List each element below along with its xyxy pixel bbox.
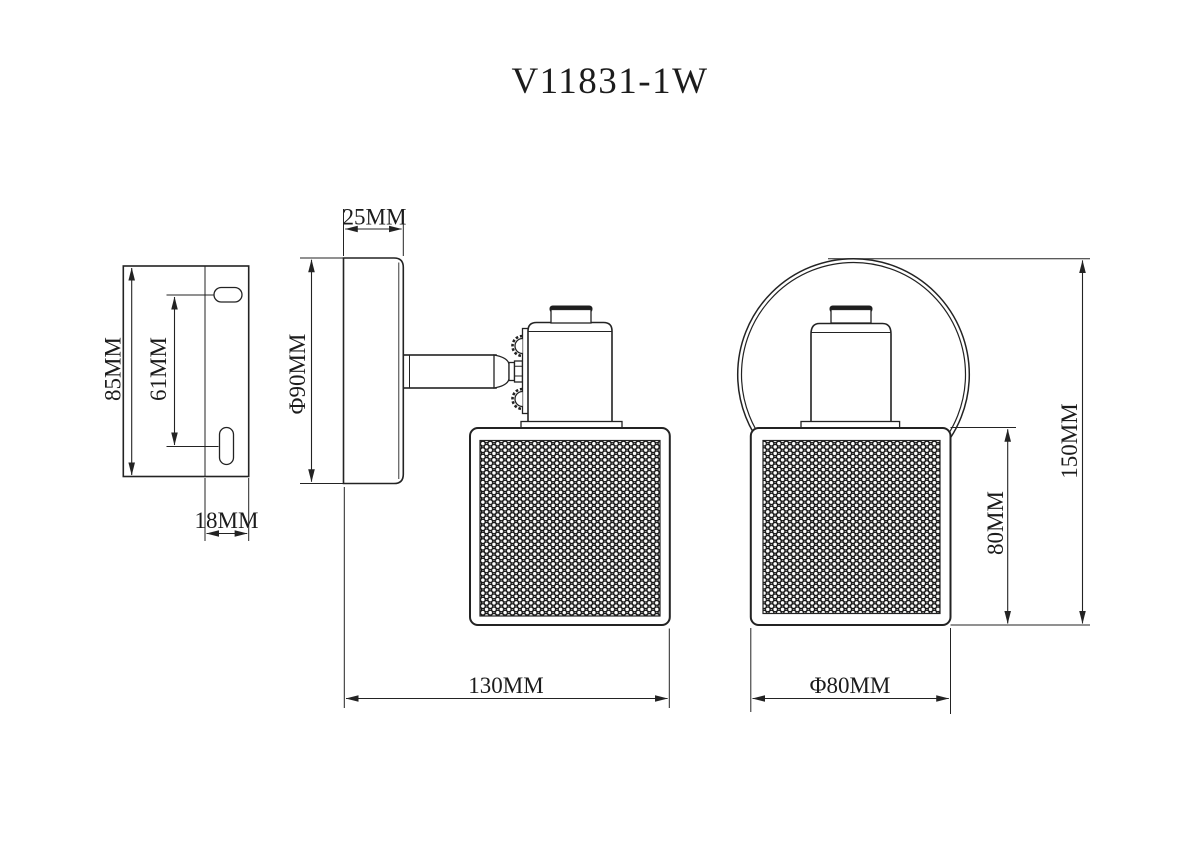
- dim-bracket-height-label: 85MM: [101, 337, 126, 401]
- drawing-title: V11831-1W: [511, 61, 708, 102]
- dim-shade-diameter: Φ80MM: [751, 628, 951, 714]
- dim-bracket-width: 18MM: [195, 478, 259, 541]
- socket-cap-front: [831, 310, 871, 324]
- dim-canopy-diameter: Φ90MM: [285, 258, 344, 484]
- lamp-arm: [403, 355, 496, 388]
- dim-canopy-depth: 25MM: [343, 205, 407, 257]
- shade-flange-front: [801, 422, 900, 428]
- lamp-side-view: 25MM Φ90MM: [285, 205, 670, 709]
- mesh-pattern-side: [480, 441, 660, 617]
- dim-total-projection-label: 130MM: [468, 673, 543, 698]
- dim-shade-diameter-label: Φ80MM: [810, 673, 891, 698]
- lamp-front-view: 80MM 150MM Φ80MM: [738, 259, 1090, 714]
- drawing-page: V11831-1W 85MM 61MM 18MM: [0, 0, 1200, 848]
- dim-bracket-width-label: 18MM: [195, 508, 259, 533]
- arm-nose: [494, 355, 509, 388]
- bracket-side-view: 85MM 61MM 18MM: [101, 266, 259, 541]
- dim-canopy-diameter-label: Φ90MM: [285, 334, 310, 415]
- dim-hole-spacing-label: 61MM: [146, 337, 171, 401]
- bracket-top-slot: [214, 288, 242, 303]
- dim-canopy-depth-label: 25MM: [343, 205, 407, 230]
- technical-drawing-canvas: V11831-1W 85MM 61MM 18MM: [0, 0, 1200, 848]
- shade-flange-side: [521, 422, 622, 428]
- bracket-bottom-slot: [220, 428, 234, 465]
- socket-housing-front: [811, 324, 891, 423]
- mesh-pattern-front: [763, 441, 940, 614]
- socket-cap-side: [551, 310, 591, 324]
- dim-shade-height: 80MM: [983, 429, 1008, 623]
- dim-shade-height-label: 80MM: [983, 491, 1008, 555]
- dim-total-height-label: 150MM: [1057, 403, 1082, 478]
- dim-total-height: 150MM: [1057, 260, 1083, 623]
- socket-housing-side: [528, 323, 612, 423]
- canopy-plate: [344, 258, 404, 484]
